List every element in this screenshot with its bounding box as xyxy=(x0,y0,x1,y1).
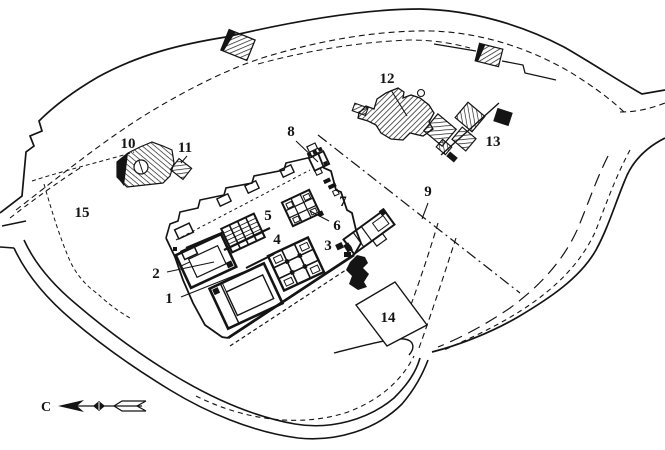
leader-line-9 xyxy=(422,203,428,219)
label-4: 4 xyxy=(273,232,281,248)
inner-dashed-top xyxy=(16,31,626,210)
outer-wall-right xyxy=(432,138,665,352)
label-2: 2 xyxy=(152,266,160,282)
south-gate-hook xyxy=(334,339,413,355)
inner-dashed-top-left-second xyxy=(10,168,80,218)
site-plan-figure: С 123456789101112131415 xyxy=(0,0,665,450)
label-15: 15 xyxy=(75,205,90,221)
ruin-13 xyxy=(424,102,513,162)
west-gate-jaw-lower xyxy=(0,247,14,248)
north-arrow-icon: С xyxy=(41,400,146,415)
label-6: 6 xyxy=(333,218,341,234)
ruin-13-black-square xyxy=(493,108,513,126)
label-1: 1 xyxy=(165,291,173,307)
ruin-12 xyxy=(352,88,434,140)
label-8: 8 xyxy=(287,124,295,140)
complex-north-inner-dashes xyxy=(176,170,310,240)
label-11: 11 xyxy=(178,140,192,156)
road-to-south-gate-b xyxy=(419,238,456,348)
ruin-12-knob xyxy=(418,90,425,97)
north-west-gate-structure xyxy=(221,30,255,61)
label-7: 7 xyxy=(339,194,347,210)
site-plan-canvas: С 123456789101112131415 xyxy=(0,0,665,450)
north-east-gate-area xyxy=(434,43,556,80)
inner-dashed-bottom xyxy=(196,356,414,420)
inner-dashed-north-road xyxy=(258,40,470,64)
north-east-gate-flank-right xyxy=(502,61,556,80)
label-10: 10 xyxy=(121,136,136,152)
label-14: 14 xyxy=(381,310,397,326)
label-13: 13 xyxy=(486,134,501,150)
west-gate-jaw-upper xyxy=(2,221,26,226)
label-5: 5 xyxy=(264,208,272,224)
label-3: 3 xyxy=(324,238,332,254)
building-6 xyxy=(282,189,324,229)
outer-wall-north xyxy=(0,9,665,213)
label-12: 12 xyxy=(380,71,395,87)
inner-dashed-funnel-exit xyxy=(620,103,665,112)
compass-north-label: С xyxy=(41,400,51,415)
structure-7 xyxy=(323,176,340,197)
inner-longdash-right xyxy=(438,156,608,347)
label-9: 9 xyxy=(424,184,432,200)
north-east-gate-structure xyxy=(475,43,503,66)
inner-dashed-right xyxy=(444,150,630,350)
